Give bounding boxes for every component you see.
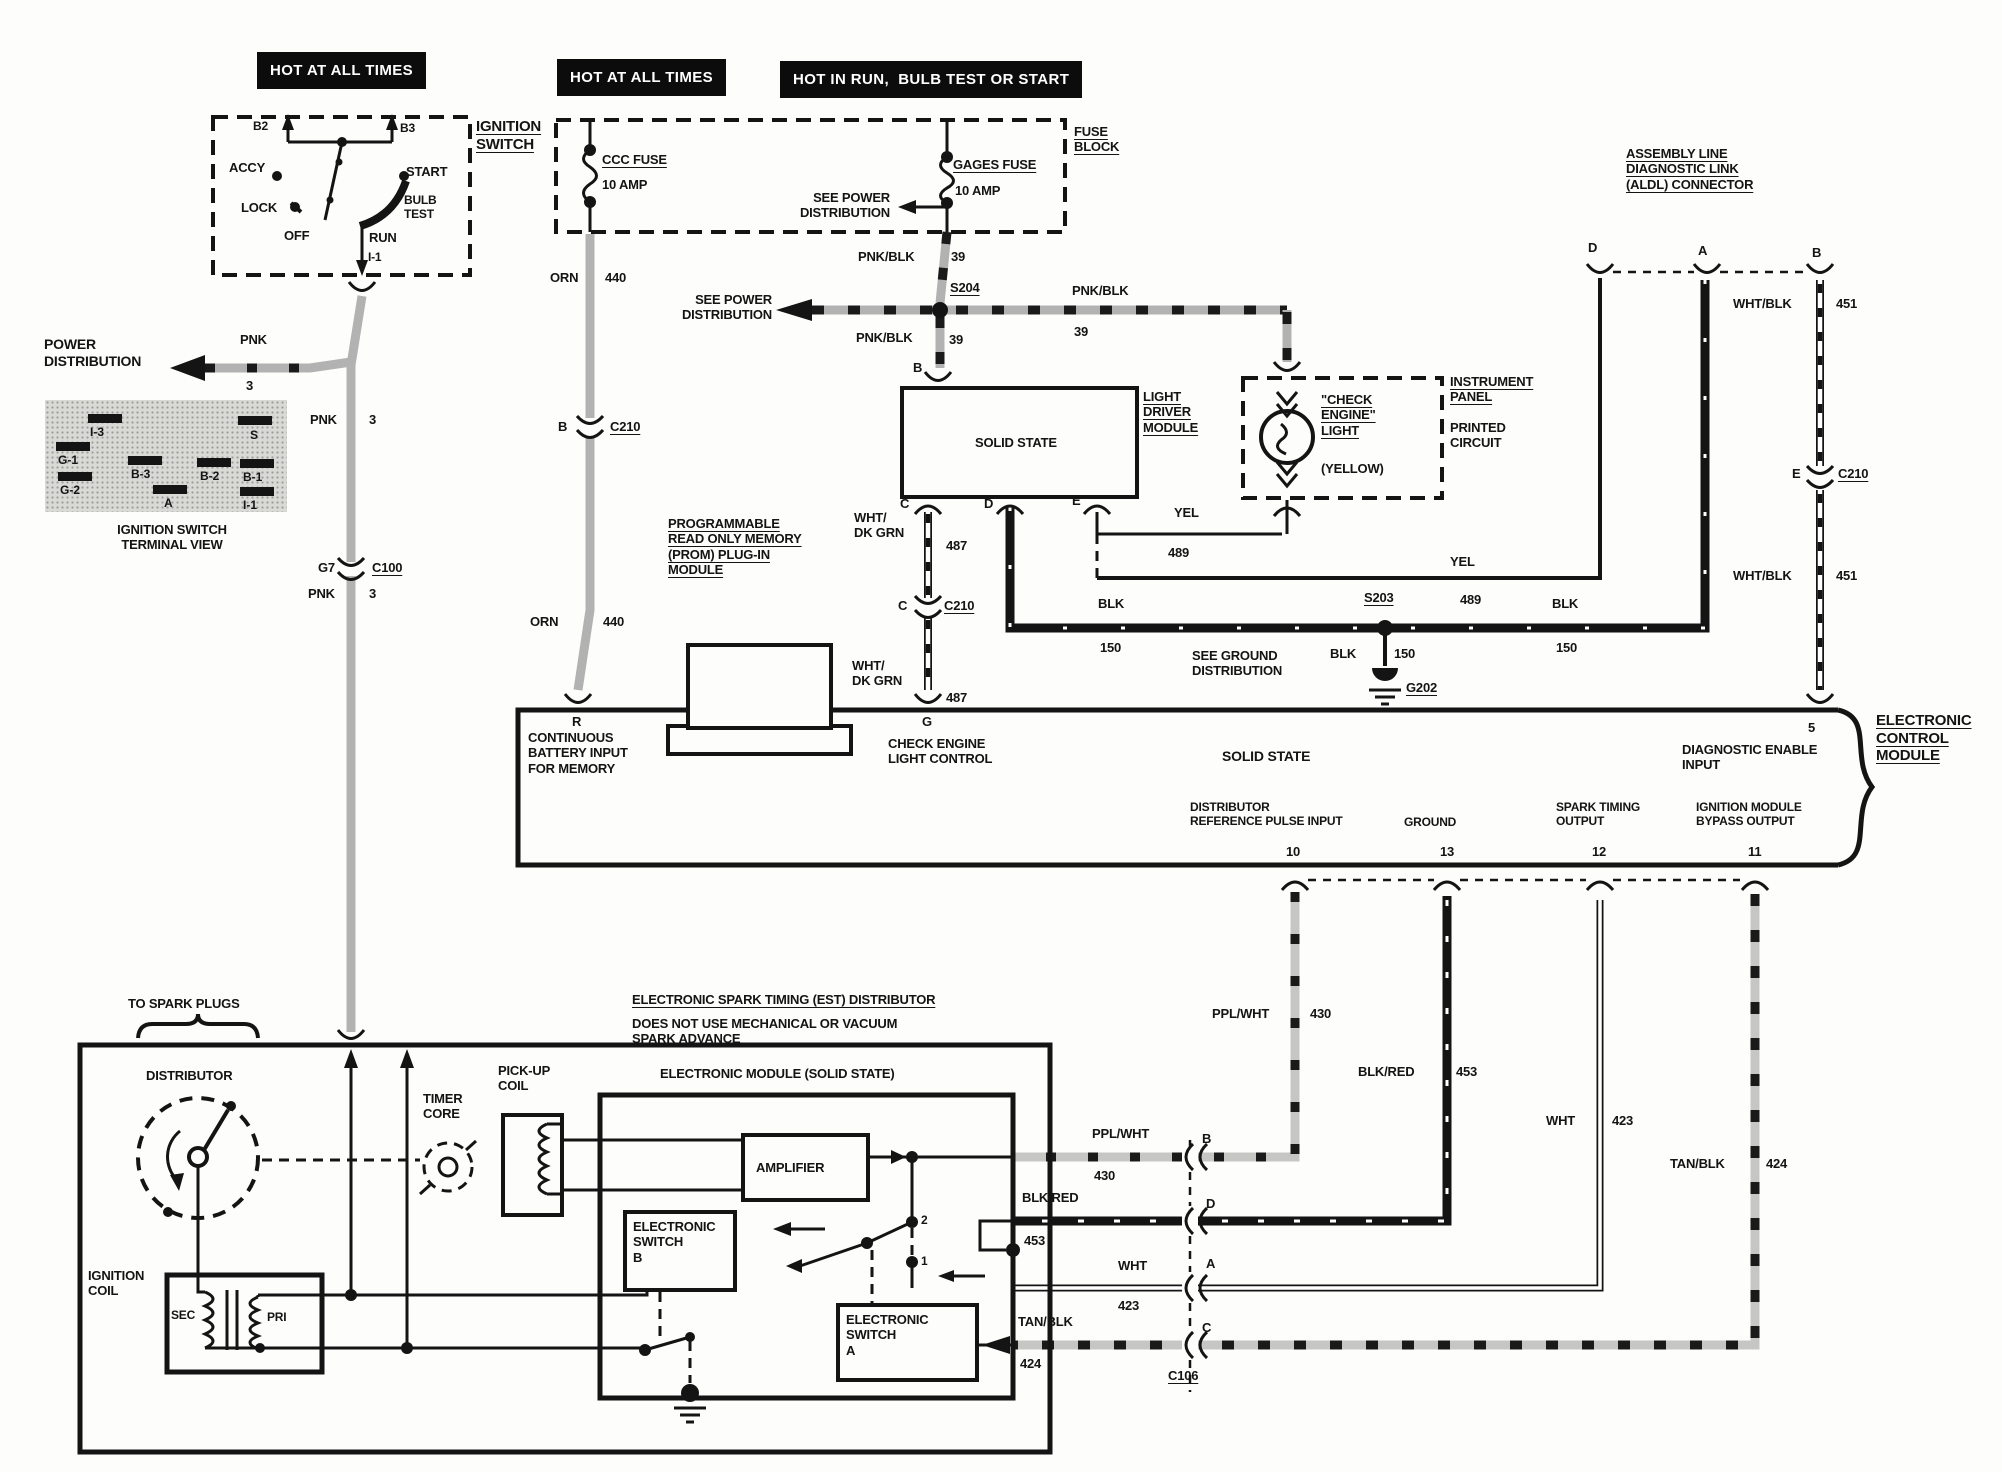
wire-blk-num-2: 150 [1394, 646, 1415, 661]
wire-tanblk-color-2: TAN/BLK [1018, 1314, 1073, 1329]
gages-fuse-label: GAGES FUSE [953, 157, 1036, 172]
ignition-switch-title: IGNITION SWITCH [476, 118, 541, 153]
wire-pnk-num-3: 3 [369, 586, 376, 601]
coil-feed-verticals [351, 1062, 407, 1348]
splice-s203: S203 [1364, 590, 1394, 605]
wire-blkred-color-1: BLK/RED [1358, 1064, 1414, 1079]
ecm-diag-enable: DIAGNOSTIC ENABLE INPUT [1682, 742, 1817, 773]
see-power-dist-fuse: SEE POWER DISTRIBUTION [770, 190, 890, 221]
pos-run: RUN [369, 230, 397, 245]
pos-start: START [406, 164, 447, 179]
distributor-label: DISTRIBUTOR [146, 1068, 232, 1083]
c106-term-c: C [1202, 1320, 1211, 1335]
wire-yel-color-1: YEL [1174, 505, 1199, 520]
wire-tanblk-color-1: TAN/BLK [1670, 1156, 1725, 1171]
s203-splice [1377, 620, 1393, 636]
wire-wht-color-2: WHT [1118, 1258, 1147, 1273]
term-b-orn: B [558, 419, 567, 434]
diagram-linework [0, 0, 2002, 1472]
light-driver-module-title: LIGHT DRIVER MODULE [1143, 389, 1198, 435]
wire-orn-color-1: ORN [550, 270, 578, 285]
ecm-ref-pulse: DISTRIBUTOR REFERENCE PULSE INPUT [1190, 800, 1343, 828]
ecm-term-g: G [922, 714, 932, 729]
ground-g202: G202 [1406, 680, 1437, 695]
wire-blk-num-1: 150 [1100, 640, 1121, 655]
pickup-coil [503, 1115, 743, 1215]
wire-blk-color-2: BLK [1330, 646, 1356, 661]
wire-blk-color-1: BLK [1098, 596, 1124, 611]
s204-splice [932, 302, 948, 318]
ecm-spark-timing: SPARK TIMING OUTPUT [1556, 800, 1640, 828]
wire-pplwht-color-2: PPL/WHT [1092, 1126, 1149, 1141]
term-b-module: B [913, 360, 922, 375]
ecm-term-13: 13 [1440, 844, 1454, 859]
g202-ground [1369, 668, 1401, 704]
contact-1-label: 1 [921, 1254, 927, 1268]
wire-orn-num-1: 440 [605, 270, 626, 285]
ground-switch [639, 1292, 706, 1422]
timer-core-label: TIMER CORE [423, 1091, 462, 1122]
wire-pnk-color-3: PNK [308, 586, 335, 601]
splice-s204: S204 [950, 280, 980, 295]
prom-title: PROGRAMMABLE READ ONLY MEMORY (PROM) PLU… [668, 516, 802, 577]
wire-whtblk-color-1: WHT/BLK [1733, 296, 1792, 311]
wire-pnk-num-1: 3 [246, 378, 253, 393]
ecm-solid-state: SOLID STATE [1222, 748, 1310, 765]
wire-pplwht-num-1: 430 [1310, 1006, 1331, 1021]
wire-orn-color-2: ORN [530, 614, 558, 629]
wire-pnkblk-num-3: 39 [949, 332, 963, 347]
coil-pri-feed [258, 1290, 647, 1295]
wire-pnkblk-num-1: 39 [951, 249, 965, 264]
fuse-block-title: FUSE BLOCK [1074, 124, 1119, 155]
electronic-module-label: ELECTRONIC MODULE (SOLID STATE) [660, 1066, 895, 1081]
distributor-symbol [138, 1098, 258, 1292]
ecm-term-10: 10 [1286, 844, 1300, 859]
banner-hot-at-all-times-1: HOT AT ALL TIMES [257, 52, 426, 89]
orn-wire [578, 234, 590, 690]
wire-yel-color-2: YEL [1450, 554, 1475, 569]
wire-487-color-1: WHT/ DK GRN [854, 510, 904, 541]
banner-hot-in-run: HOT IN RUN, BULB TEST OR START [780, 61, 1082, 98]
amplifier-label: AMPLIFIER [756, 1160, 824, 1175]
ecm-term-12: 12 [1592, 844, 1606, 859]
tv-term: B-3 [131, 468, 150, 480]
wire-pnkblk-color-3: PNK/BLK [856, 330, 912, 345]
ignition-switch-terminal-view: I-3 S G-1 B-3 B-2 B-1 G-2 A I-1 [45, 400, 287, 512]
wht-wire [1013, 900, 1600, 1288]
pnkblk-wire [776, 232, 1287, 368]
wire-whtblk-num-1: 451 [1836, 296, 1857, 311]
wire-pnk-num-2: 3 [369, 412, 376, 427]
tv-term: I-3 [90, 426, 104, 438]
wire-wht-num-2: 423 [1118, 1298, 1139, 1313]
wire-yel-num-2: 489 [1460, 592, 1481, 607]
ecm-bypass: IGNITION MODULE BYPASS OUTPUT [1696, 800, 1802, 828]
tv-term: B-1 [243, 471, 262, 483]
aldl-term-b: B [1812, 245, 1821, 260]
wire-blk-num-3: 150 [1556, 640, 1577, 655]
wire-blkred-color-2: BLK/RED [1022, 1190, 1078, 1205]
power-distribution-label: POWER DISTRIBUTION [44, 336, 141, 369]
check-engine-light-label: "CHECK ENGINE" LIGHT [1321, 392, 1376, 438]
term-b2: B2 [253, 119, 268, 133]
wire-487-num-1: 487 [946, 538, 967, 553]
prom-box [688, 645, 831, 728]
ccc-fuse-amp: 10 AMP [602, 177, 647, 192]
ignition-coil [167, 1275, 322, 1372]
wire-tanblk-num-1: 424 [1766, 1156, 1787, 1171]
wire-pplwht-color-1: PPL/WHT [1212, 1006, 1269, 1021]
pickup-coil-label: PICK-UP COIL [498, 1063, 550, 1094]
aldl-title: ASSEMBLY LINE DIAGNOSTIC LINK (ALDL) CON… [1626, 146, 1753, 192]
c106-term-b: B [1202, 1131, 1211, 1146]
conn-c106: C106 [1168, 1368, 1198, 1383]
wire-whtblk-num-2: 451 [1836, 568, 1857, 583]
wire-yel-num-1: 489 [1168, 545, 1189, 560]
ecm-term-r: R [572, 714, 581, 729]
term-b3: B3 [400, 121, 415, 135]
ecm-ground: GROUND [1404, 815, 1456, 829]
term-e-module: E [1072, 493, 1080, 508]
wire-blkred-num-1: 453 [1456, 1064, 1477, 1079]
switch-b-label: ELECTRONIC SWITCH B [633, 1219, 716, 1265]
light-module-solid-state: SOLID STATE [975, 435, 1057, 450]
contact-2-label: 2 [921, 1213, 927, 1227]
conn-c210-487: C210 [944, 598, 974, 613]
wire-487-color-2: WHT/ DK GRN [852, 658, 902, 689]
ecm-brace [1838, 710, 1872, 865]
ecm-title: ELECTRONIC CONTROL MODULE [1876, 712, 1972, 765]
wiring-diagram: HOT AT ALL TIMES HOT AT ALL TIMES HOT IN… [0, 0, 2002, 1472]
aldl-term-a: A [1698, 243, 1707, 258]
switch-a-label: ELECTRONIC SWITCH A [846, 1312, 929, 1358]
ecm-cel-control: CHECK ENGINE LIGHT CONTROL [888, 736, 992, 767]
term-e-c210: E [1792, 466, 1800, 481]
spark-plugs-brace [138, 1014, 258, 1038]
see-power-dist-s204: SEE POWER DISTRIBUTION [640, 292, 772, 323]
tv-term: B-2 [200, 470, 219, 482]
tv-term: A [164, 497, 173, 509]
see-ground-distribution: SEE GROUND DISTRIBUTION [1192, 648, 1282, 679]
ccc-fuse-label: CCC FUSE [602, 152, 667, 167]
wire-pnk-color-1: PNK [240, 332, 267, 347]
wire-tanblk-num-2: 424 [1020, 1356, 1041, 1371]
tv-term: G-1 [58, 454, 78, 466]
wire-orn-num-2: 440 [603, 614, 624, 629]
instrument-panel-label: INSTRUMENT PANEL [1450, 374, 1533, 405]
wire-pnkblk-color-2: PNK/BLK [1072, 283, 1128, 298]
c106-term-a: A [1206, 1256, 1215, 1271]
pplwht-wire [1013, 892, 1295, 1157]
wire-blk-color-3: BLK [1552, 596, 1578, 611]
pos-bulb-test: BULB TEST [404, 193, 437, 221]
printed-circuit-label: PRINTED CIRCUIT [1450, 420, 1506, 451]
conn-g7: G7 [318, 560, 335, 575]
pos-off: OFF [284, 228, 309, 243]
wire-pnk-color-2: PNK [310, 412, 337, 427]
c106-term-d: D [1206, 1196, 1215, 1211]
to-spark-plugs-label: TO SPARK PLUGS [128, 996, 240, 1011]
ecm-term-11: 11 [1748, 844, 1761, 859]
wire-whtblk-color-2: WHT/BLK [1733, 568, 1792, 583]
banner-hot-at-all-times-2: HOT AT ALL TIMES [557, 59, 726, 96]
aldl-term-d: D [1588, 240, 1597, 255]
wire-wht-color-1: WHT [1546, 1113, 1575, 1128]
pos-lock: LOCK [241, 200, 277, 215]
gages-fuse-amp: 10 AMP [955, 183, 1000, 198]
coil-pri-label: PRI [267, 1310, 286, 1324]
tv-term: I-1 [243, 499, 257, 511]
ecm-batt-input: CONTINUOUS BATTERY INPUT FOR MEMORY [528, 730, 628, 776]
term-c-c210: C [898, 598, 907, 613]
wire-pnkblk-num-2: 39 [1074, 324, 1088, 339]
prom-socket [668, 726, 851, 754]
wire-487-num-2: 487 [946, 690, 967, 705]
terminal-view-caption: IGNITION SWITCH TERMINAL VIEW [92, 522, 252, 553]
wire-wht-num-1: 423 [1612, 1113, 1633, 1128]
check-engine-light-color: (YELLOW) [1321, 461, 1384, 476]
wire-blkred-num-2: 453 [1024, 1233, 1045, 1248]
timer-core [262, 1141, 476, 1194]
pos-accy: ACCY [229, 160, 265, 175]
ignition-coil-label: IGNITION COIL [88, 1268, 144, 1299]
term-i1: I-1 [368, 250, 381, 264]
ecm-term-5: 5 [1808, 720, 1815, 735]
est-note-title: ELECTRONIC SPARK TIMING (EST) DISTRIBUTO… [632, 992, 935, 1007]
conn-c210-451: C210 [1838, 466, 1868, 481]
coil-sec-label: SEC [171, 1308, 195, 1322]
tv-term: S [250, 429, 258, 441]
term-d-module: D [984, 496, 993, 511]
tv-term: G-2 [60, 484, 80, 496]
conn-c100: C100 [372, 560, 402, 575]
conn-c210-orn: C210 [610, 419, 640, 434]
est-note-body: DOES NOT USE MECHANICAL OR VACUUM SPARK … [632, 1016, 897, 1047]
wire-pplwht-num-2: 430 [1094, 1168, 1115, 1183]
wire-pnkblk-color-1: PNK/BLK [858, 249, 914, 264]
